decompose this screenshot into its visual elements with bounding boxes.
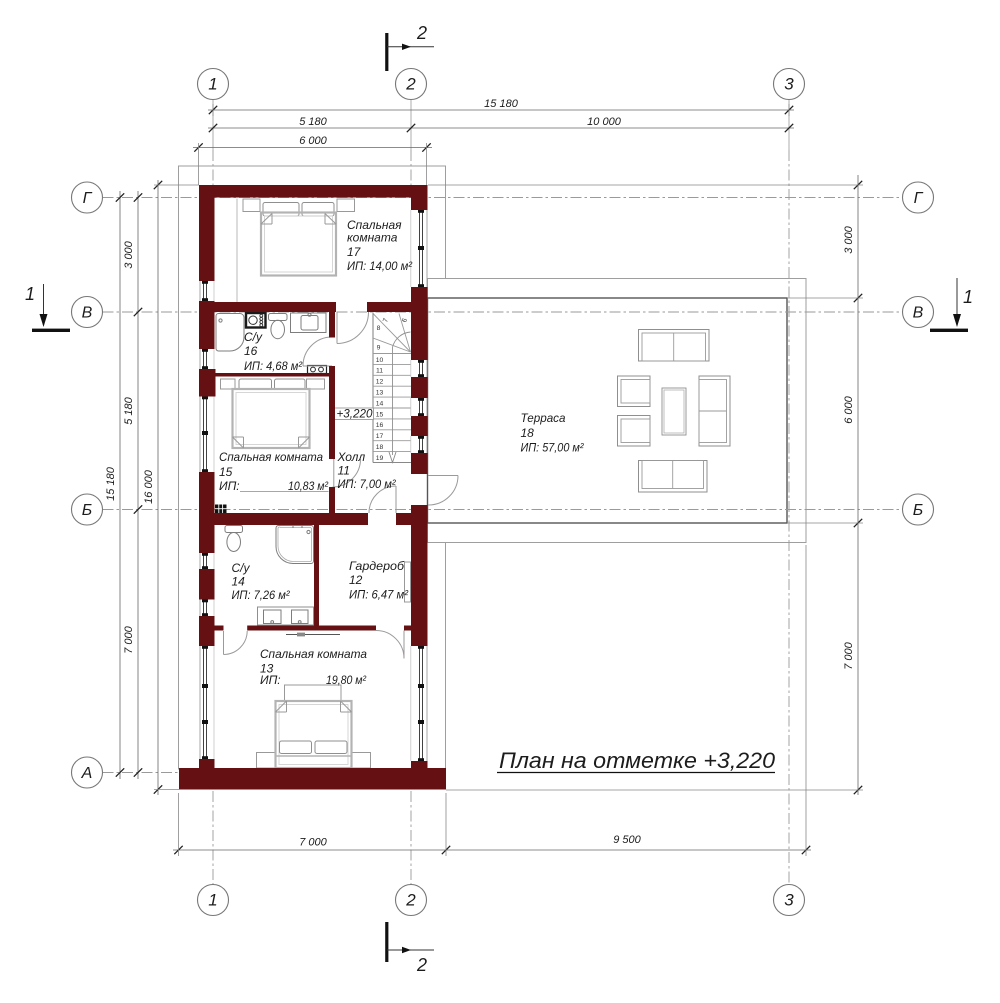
svg-text:1: 1 (25, 284, 35, 304)
svg-text:Б: Б (913, 502, 923, 519)
svg-text:1: 1 (208, 891, 217, 910)
svg-text:3: 3 (784, 75, 794, 94)
svg-text:В: В (82, 305, 93, 322)
svg-text:ИП: 6,47 м²: ИП: 6,47 м² (349, 588, 409, 602)
svg-text:А: А (81, 765, 93, 782)
svg-text:Спальная комната: Спальная комната (260, 647, 367, 661)
svg-text:Холл: Холл (337, 450, 366, 464)
svg-text:10,83 м²: 10,83 м² (288, 479, 329, 493)
svg-text:3 000: 3 000 (843, 225, 855, 253)
svg-text:2: 2 (416, 23, 427, 43)
svg-text:С/у: С/у (232, 561, 251, 575)
svg-text:ИП: 7,26 м²: ИП: 7,26 м² (232, 588, 291, 602)
svg-text:Терраса: Терраса (521, 411, 566, 425)
svg-text:С/у: С/у (244, 330, 263, 344)
svg-text:3: 3 (784, 891, 794, 910)
svg-text:17: 17 (376, 433, 384, 440)
svg-text:ИП: 57,00 м²: ИП: 57,00 м² (521, 441, 585, 455)
svg-text:6 000: 6 000 (843, 395, 855, 423)
svg-text:5 180: 5 180 (299, 116, 327, 128)
svg-text:15 180: 15 180 (484, 98, 519, 110)
svg-text:1: 1 (208, 75, 217, 94)
svg-text:Спальная комната: Спальная комната (219, 450, 323, 464)
svg-text:Г: Г (914, 190, 924, 207)
svg-text:План на отметке +3,220: План на отметке +3,220 (499, 748, 776, 773)
svg-text:комната: комната (347, 231, 398, 245)
svg-text:1: 1 (963, 287, 973, 307)
svg-text:19: 19 (376, 455, 384, 462)
svg-text:19,80 м²: 19,80 м² (326, 673, 367, 687)
svg-text:Г: Г (83, 190, 93, 207)
svg-text:6 000: 6 000 (299, 135, 327, 147)
svg-text:7 000: 7 000 (843, 641, 855, 669)
svg-text:10 000: 10 000 (587, 116, 622, 128)
svg-text:11: 11 (338, 464, 350, 478)
svg-text:9 500: 9 500 (613, 834, 641, 846)
svg-text:7 000: 7 000 (123, 625, 135, 653)
svg-text:9: 9 (377, 345, 381, 352)
svg-text:12: 12 (376, 379, 384, 386)
svg-text:Гардероб: Гардероб (349, 559, 405, 573)
svg-text:10: 10 (376, 357, 384, 364)
svg-text:18: 18 (376, 444, 384, 451)
svg-text:11: 11 (376, 368, 383, 375)
svg-text:8: 8 (377, 325, 381, 332)
svg-text:15: 15 (219, 465, 233, 479)
svg-text:17: 17 (347, 245, 362, 259)
svg-text:14: 14 (232, 575, 246, 589)
svg-text:16: 16 (244, 344, 258, 358)
svg-text:12: 12 (349, 573, 363, 587)
svg-text:3 000: 3 000 (123, 240, 135, 268)
svg-text:2: 2 (405, 891, 416, 910)
svg-text:7 000: 7 000 (299, 837, 327, 849)
svg-text:ИП: 14,00 м²: ИП: 14,00 м² (347, 259, 413, 273)
svg-text:2: 2 (405, 75, 416, 94)
svg-text:15 180: 15 180 (105, 466, 117, 501)
svg-text:В: В (913, 305, 924, 322)
svg-text:ИП:: ИП: (219, 479, 240, 493)
svg-text:ИП: 4,68 м²: ИП: 4,68 м² (244, 359, 303, 373)
svg-text:15: 15 (376, 411, 384, 418)
svg-text:18: 18 (521, 426, 535, 440)
svg-text:Б: Б (82, 502, 92, 519)
svg-text:ИП: 7,00 м²: ИП: 7,00 м² (338, 477, 397, 491)
svg-text:+3,220: +3,220 (337, 409, 374, 421)
svg-text:13: 13 (376, 390, 384, 397)
svg-text:14: 14 (376, 400, 384, 407)
svg-text:ИП:: ИП: (260, 673, 281, 687)
svg-text:16: 16 (376, 422, 384, 429)
svg-text:2: 2 (416, 955, 427, 975)
svg-text:16 000: 16 000 (143, 469, 155, 504)
svg-text:5 180: 5 180 (123, 396, 135, 424)
